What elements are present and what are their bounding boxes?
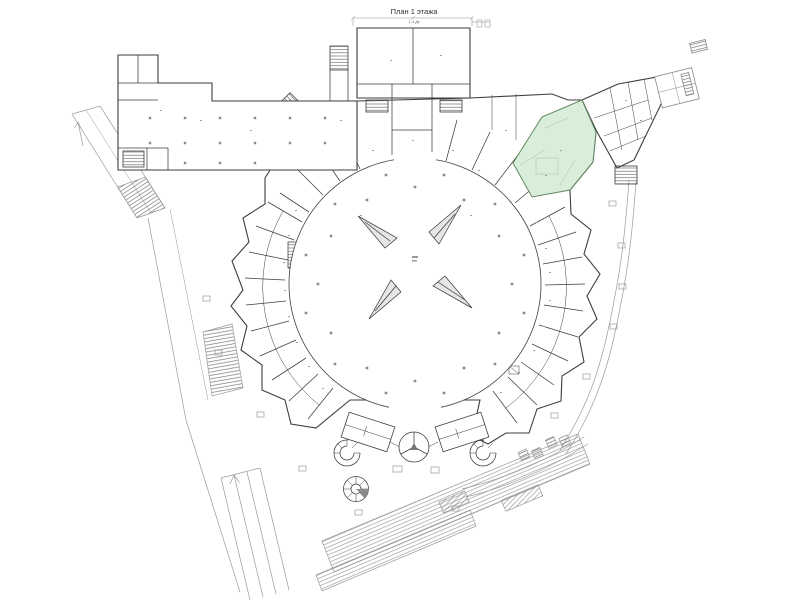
outdoor-stair-west bbox=[203, 324, 243, 396]
outdoor-steps bbox=[316, 434, 590, 591]
revolving-door bbox=[399, 432, 429, 462]
ramp-arrow-icon bbox=[75, 122, 84, 146]
dimension-line bbox=[351, 16, 490, 27]
service-stair-right bbox=[440, 100, 462, 112]
service-stair-left bbox=[366, 100, 388, 112]
vestibule-right bbox=[435, 412, 489, 452]
drawing-header: План 1 этажа 1-4 Дк bbox=[391, 7, 439, 24]
spiral-staircase bbox=[344, 477, 369, 502]
hall-exterior-stair bbox=[330, 46, 348, 70]
plan-title: План 1 этажа bbox=[391, 7, 439, 16]
top-service-block bbox=[351, 16, 490, 112]
floor-plan-page: План 1 этажа 1-4 Дк bbox=[0, 0, 800, 600]
floor-plan-canvas: План 1 этажа 1-4 Дк bbox=[0, 0, 800, 600]
curved-stair-left bbox=[334, 440, 360, 466]
road-markings bbox=[221, 468, 289, 600]
hall-stair bbox=[123, 151, 144, 167]
plaza-boundary bbox=[148, 209, 243, 592]
curved-stair-right bbox=[470, 440, 496, 466]
grand-hall bbox=[118, 46, 357, 170]
wing-exterior-stair bbox=[615, 166, 637, 184]
plan-subtitle: 1-4 Дк bbox=[408, 19, 420, 24]
vestibule-left bbox=[341, 412, 395, 452]
entrance bbox=[334, 412, 496, 466]
